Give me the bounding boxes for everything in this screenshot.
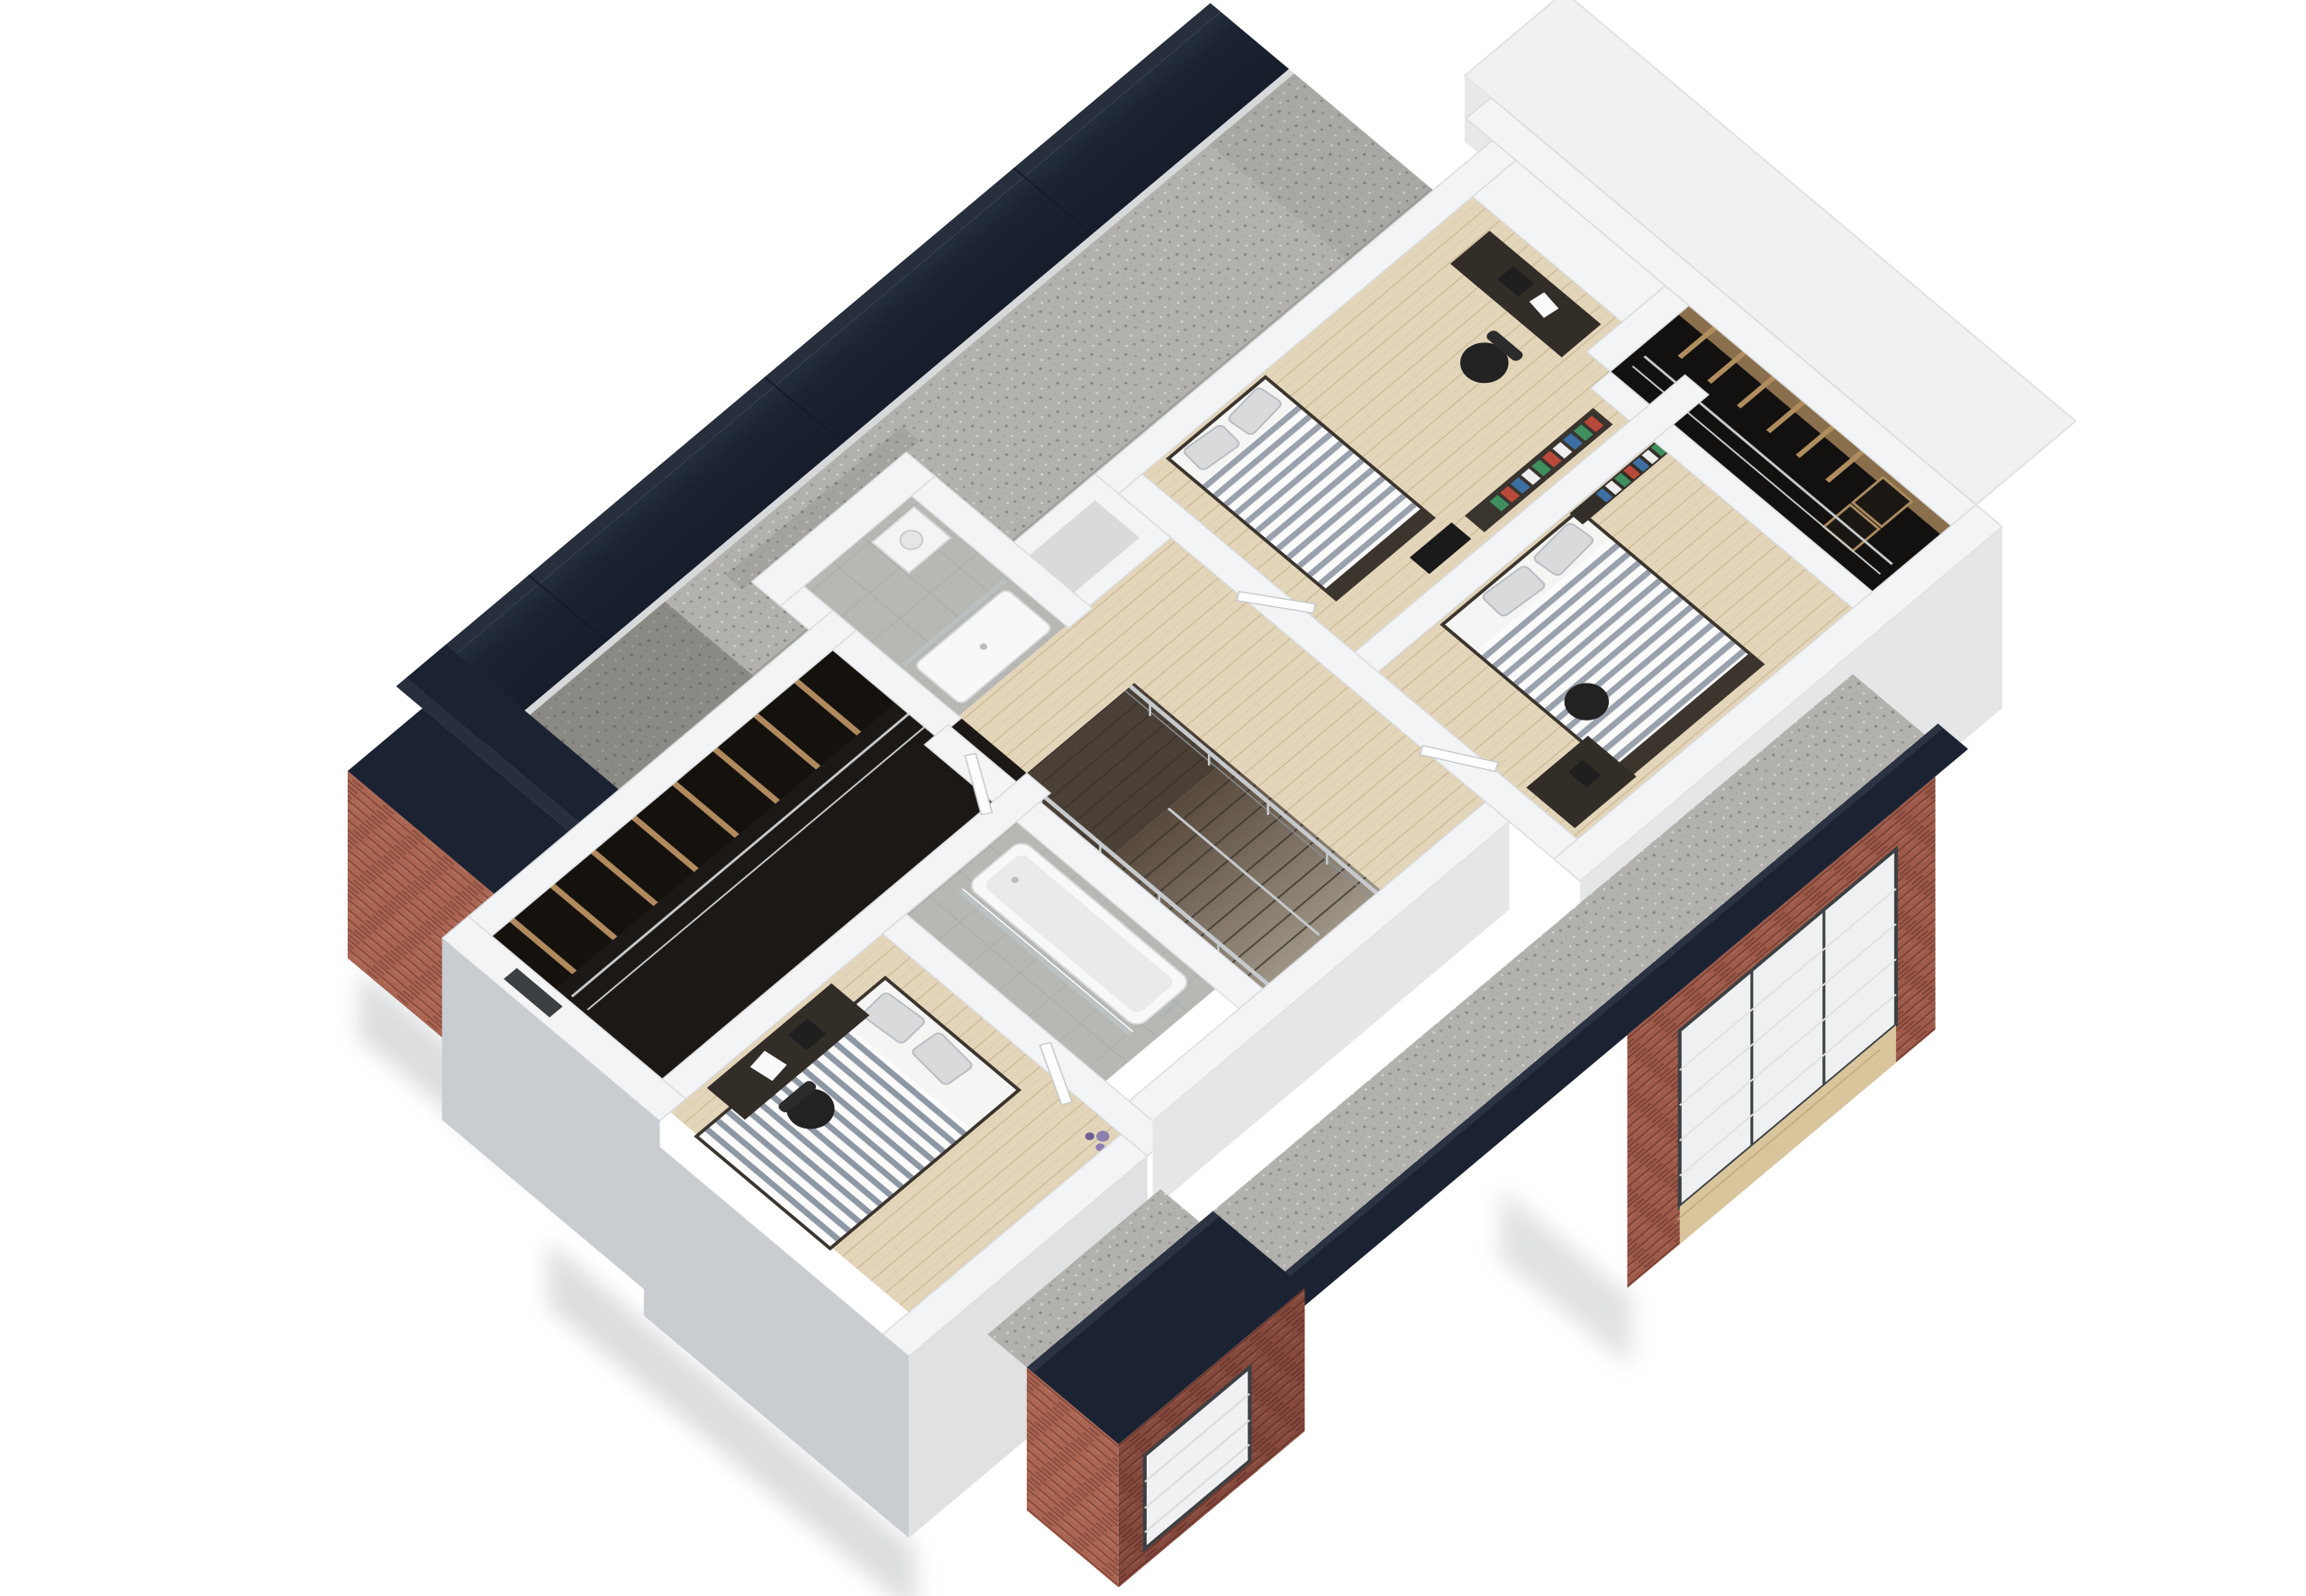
floorplan-3d-render: [0, 0, 2306, 1596]
floorplan-canvas: [0, 0, 2306, 1596]
iso-scene: [103, 0, 2306, 1596]
